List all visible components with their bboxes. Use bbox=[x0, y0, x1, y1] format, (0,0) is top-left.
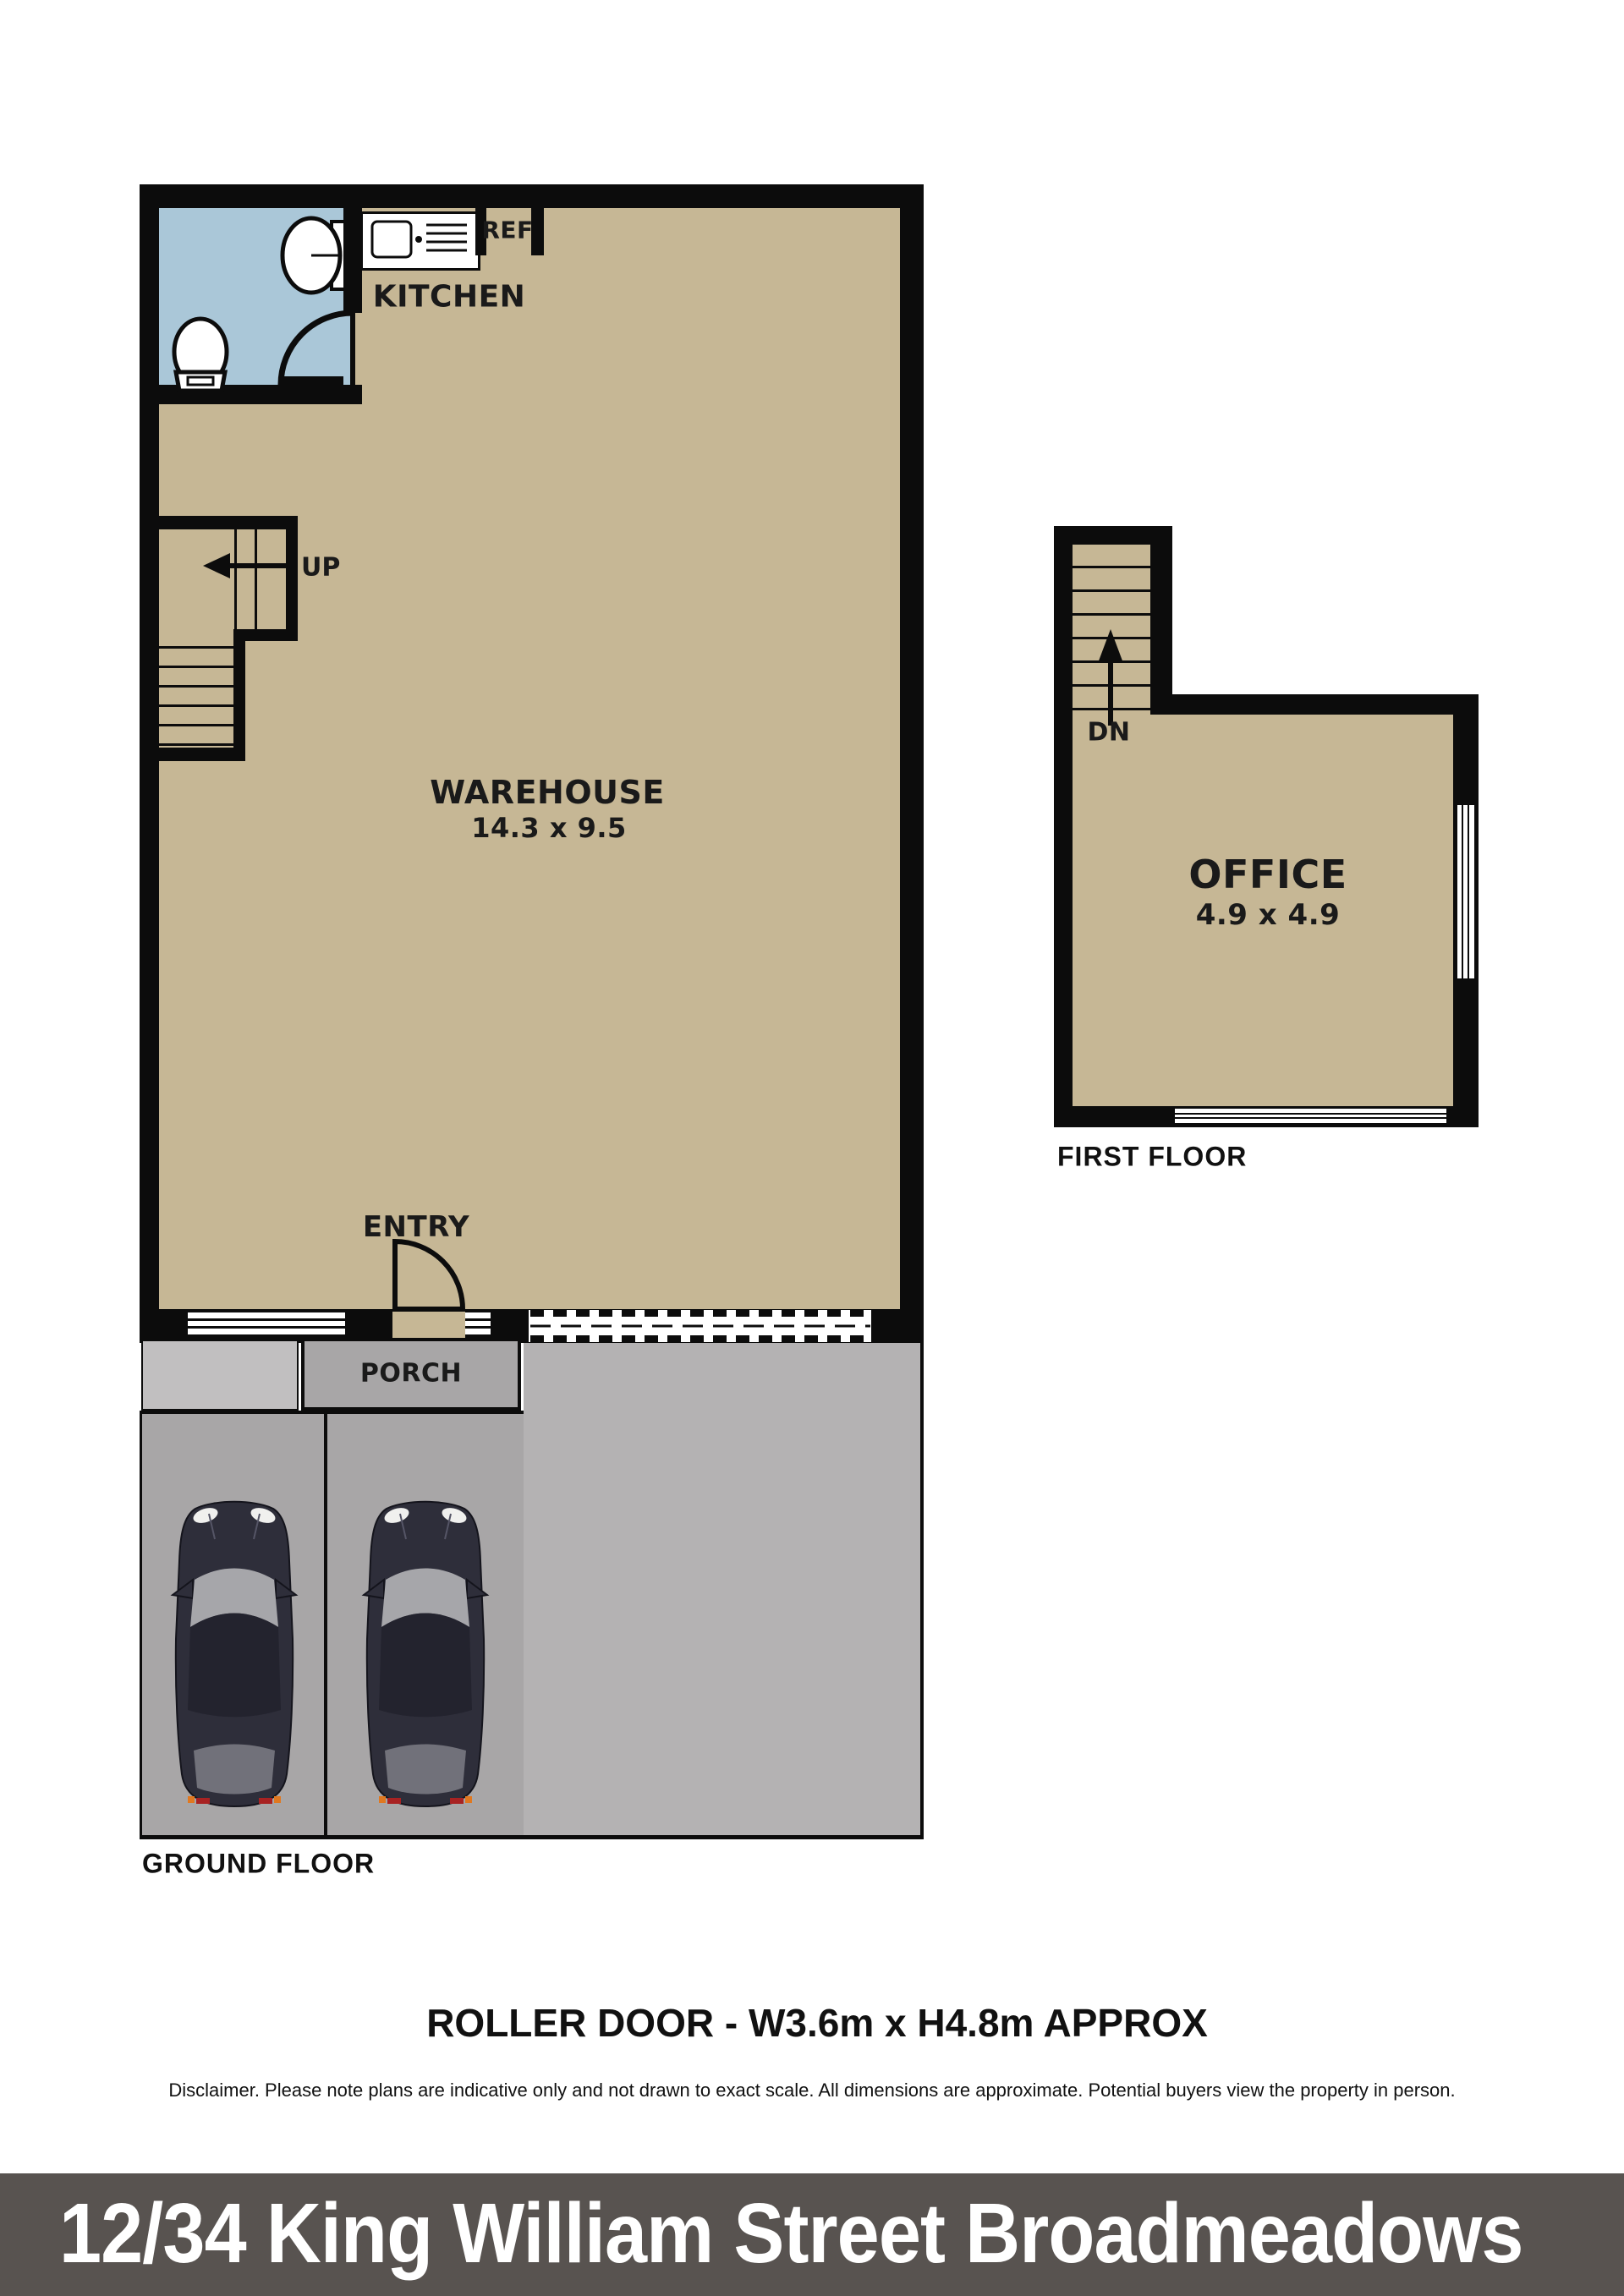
bathroom-door-ledge bbox=[282, 376, 343, 385]
front-yard-strip bbox=[141, 1340, 299, 1411]
entry-label: ENTRY bbox=[363, 1210, 469, 1244]
stairs-right-wall bbox=[286, 516, 298, 641]
roller-door-opening bbox=[529, 1310, 871, 1342]
bathroom-bottom-wall bbox=[140, 385, 362, 404]
stairs-dn-treads bbox=[1073, 545, 1150, 715]
stairs-landing-divider-2 bbox=[255, 529, 257, 629]
parking-divider bbox=[324, 1411, 327, 1835]
office-label: OFFICE bbox=[1188, 852, 1347, 897]
office-top-wall bbox=[1150, 694, 1479, 715]
stairs-side-wall bbox=[233, 641, 245, 748]
driveway bbox=[524, 1343, 924, 1835]
bathroom-floor bbox=[159, 208, 354, 385]
stairs-landing-divider-1 bbox=[234, 529, 237, 629]
parking-bottom-line bbox=[140, 1835, 924, 1839]
office-dims: 4.9 x 4.9 bbox=[1196, 898, 1341, 932]
warehouse-label: WAREHOUSE bbox=[430, 774, 665, 811]
warehouse-dims: 14.3 x 9.5 bbox=[471, 812, 627, 844]
roller-door-caption: ROLLER DOOR - W3.6m x H4.8m APPROX bbox=[426, 2000, 1208, 2046]
parking-area bbox=[140, 1411, 524, 1835]
first-floor-label: FIRST FLOOR bbox=[1057, 1142, 1247, 1173]
kitchen-label: KITCHEN bbox=[373, 280, 526, 315]
front-window-small bbox=[465, 1312, 491, 1334]
porch-label: PORCH bbox=[360, 1359, 462, 1389]
warehouse-top-wall bbox=[140, 184, 924, 208]
warehouse-right-wall bbox=[900, 184, 924, 1343]
kitchen-counter bbox=[360, 211, 480, 271]
office-right-window bbox=[1457, 805, 1474, 978]
stairs-corner-wall bbox=[233, 629, 298, 641]
stairs-up-treads bbox=[159, 629, 233, 748]
office-bottom-window bbox=[1175, 1109, 1446, 1123]
ff-stairwell-right-wall bbox=[1150, 526, 1172, 715]
dn-label: DN bbox=[1087, 718, 1130, 748]
ground-floor-label: GROUND FLOOR bbox=[142, 1849, 375, 1880]
property-address: 12/34 King William Street Broadmeadows bbox=[59, 2173, 1523, 2296]
ref-label: REF bbox=[481, 216, 533, 244]
floorplan-page: KITCHEN REF UP WAREHOUSE 14.3 x 9.5 ENTR… bbox=[0, 0, 1624, 2296]
front-window-large bbox=[188, 1312, 345, 1334]
stairs-top-wall bbox=[140, 516, 298, 529]
bathroom-right-wall bbox=[343, 208, 362, 313]
warehouse-left-wall bbox=[140, 184, 159, 1343]
driveway-right-line bbox=[920, 1343, 924, 1839]
footer-bar: 12/34 King William Street Broadmeadows bbox=[0, 2173, 1624, 2296]
up-label: UP bbox=[301, 553, 340, 583]
disclaimer-text: Disclaimer. Please note plans are indica… bbox=[168, 2080, 1455, 2101]
ff-left-wall bbox=[1054, 526, 1073, 1127]
